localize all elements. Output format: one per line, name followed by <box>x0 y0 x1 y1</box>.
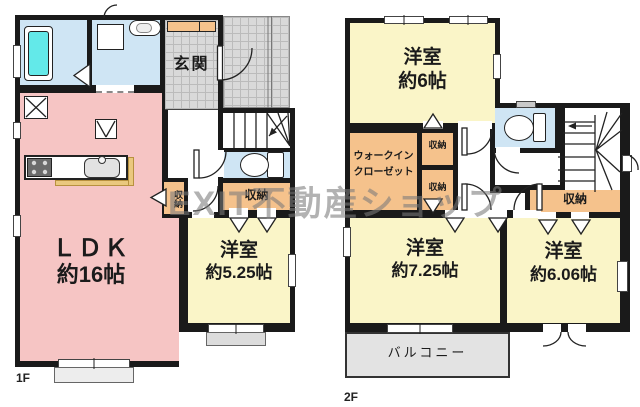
bedroom-2f-606-name-label: 洋室 <box>507 242 620 262</box>
bedroom-2f-725-size-label: 約7.25帖 <box>350 262 500 280</box>
kitchen-window <box>13 122 21 139</box>
porch <box>223 16 290 108</box>
entrance-label: 玄関 <box>165 57 218 74</box>
bedroom-1f-size-label: 約5.25帖 <box>188 264 290 282</box>
hallway-2f-east <box>495 153 560 185</box>
floor2-label: 2F <box>344 390 358 404</box>
ldk-name-label: ＬＤＫ <box>20 236 162 261</box>
ldk-side-window <box>13 215 21 237</box>
bedroom-2f-6-name-label: 洋室 <box>350 48 495 68</box>
shoe-cabinet <box>167 21 200 32</box>
bedroom-2f-6-size-label: 約6帖 <box>350 72 495 92</box>
toilet-1f-doorway <box>217 150 224 177</box>
stairs-2f-window <box>622 155 632 172</box>
shoe-cabinet <box>199 21 216 32</box>
toilet-tank-1f <box>267 152 284 178</box>
bedroom-606-window-arc <box>543 332 586 346</box>
counter-edge <box>128 157 134 186</box>
closet-a-2f-opening <box>423 121 443 129</box>
ldk-room <box>20 93 162 361</box>
ldk-size-label: 約16帖 <box>20 263 162 286</box>
floorplan-canvas: 玄関 ＬＤＫ 約16帖 洋室 約5.25帖 収納 収納 洋室 約6帖 ウォークイ… <box>0 0 640 407</box>
closet-a-2f-label: 収納 <box>422 141 453 150</box>
hallway-1f <box>168 110 218 178</box>
kitchen-sink <box>84 158 120 178</box>
bedroom-2f-606-size-label: 約6.06帖 <box>507 266 620 284</box>
floor1-label: 1F <box>16 371 30 385</box>
closet-c-2f-label: 収納 <box>530 193 620 206</box>
range-hood-symbol <box>95 119 117 139</box>
watermark-text: EXIT不動産ショップ <box>168 176 504 225</box>
toilet-2f-window <box>516 101 536 108</box>
ldk-window-sill <box>54 367 134 383</box>
stairs-1f <box>223 113 290 148</box>
toilet-bowl-1f <box>240 153 269 177</box>
refrigerator-space <box>24 96 48 119</box>
toilet-2f-doorway <box>496 147 520 153</box>
bedroom-2f-725-name-label: 洋室 <box>350 239 500 259</box>
bedroom-1f-name-label: 洋室 <box>188 241 290 261</box>
bedroom-2f-6-top-window <box>449 16 488 24</box>
bedroom-606-window-opening <box>568 324 586 332</box>
washing-machine <box>97 24 124 50</box>
washroom-sliding-door <box>96 85 134 93</box>
closet-c-2f-opening <box>571 212 589 219</box>
bathtub-water <box>28 31 49 76</box>
bedroom-2f-6-top-window <box>384 16 424 24</box>
counter-edge <box>55 180 132 186</box>
stairs-2f <box>565 108 620 190</box>
toilet-tank-2f <box>533 113 546 142</box>
bedroom-2f-6-doorway <box>458 121 492 129</box>
stove <box>27 158 52 177</box>
wash-basin-bowl <box>136 23 152 33</box>
balcony-label: バルコニー <box>345 346 510 360</box>
ldk-room-extension <box>162 218 179 361</box>
closet-c-2f-opening <box>538 212 556 219</box>
toilet-bowl-2f <box>504 115 534 141</box>
bedroom-606-window-opening <box>543 324 561 332</box>
wic-label-line1: ウォークイン <box>350 152 417 163</box>
balcony-sliding-window <box>387 324 453 333</box>
bathroom-window <box>13 45 21 78</box>
bedroom-2f-606-doorway <box>513 210 541 218</box>
bedroom-1f-window-sill <box>206 332 266 346</box>
entrance-doorway <box>217 46 224 80</box>
